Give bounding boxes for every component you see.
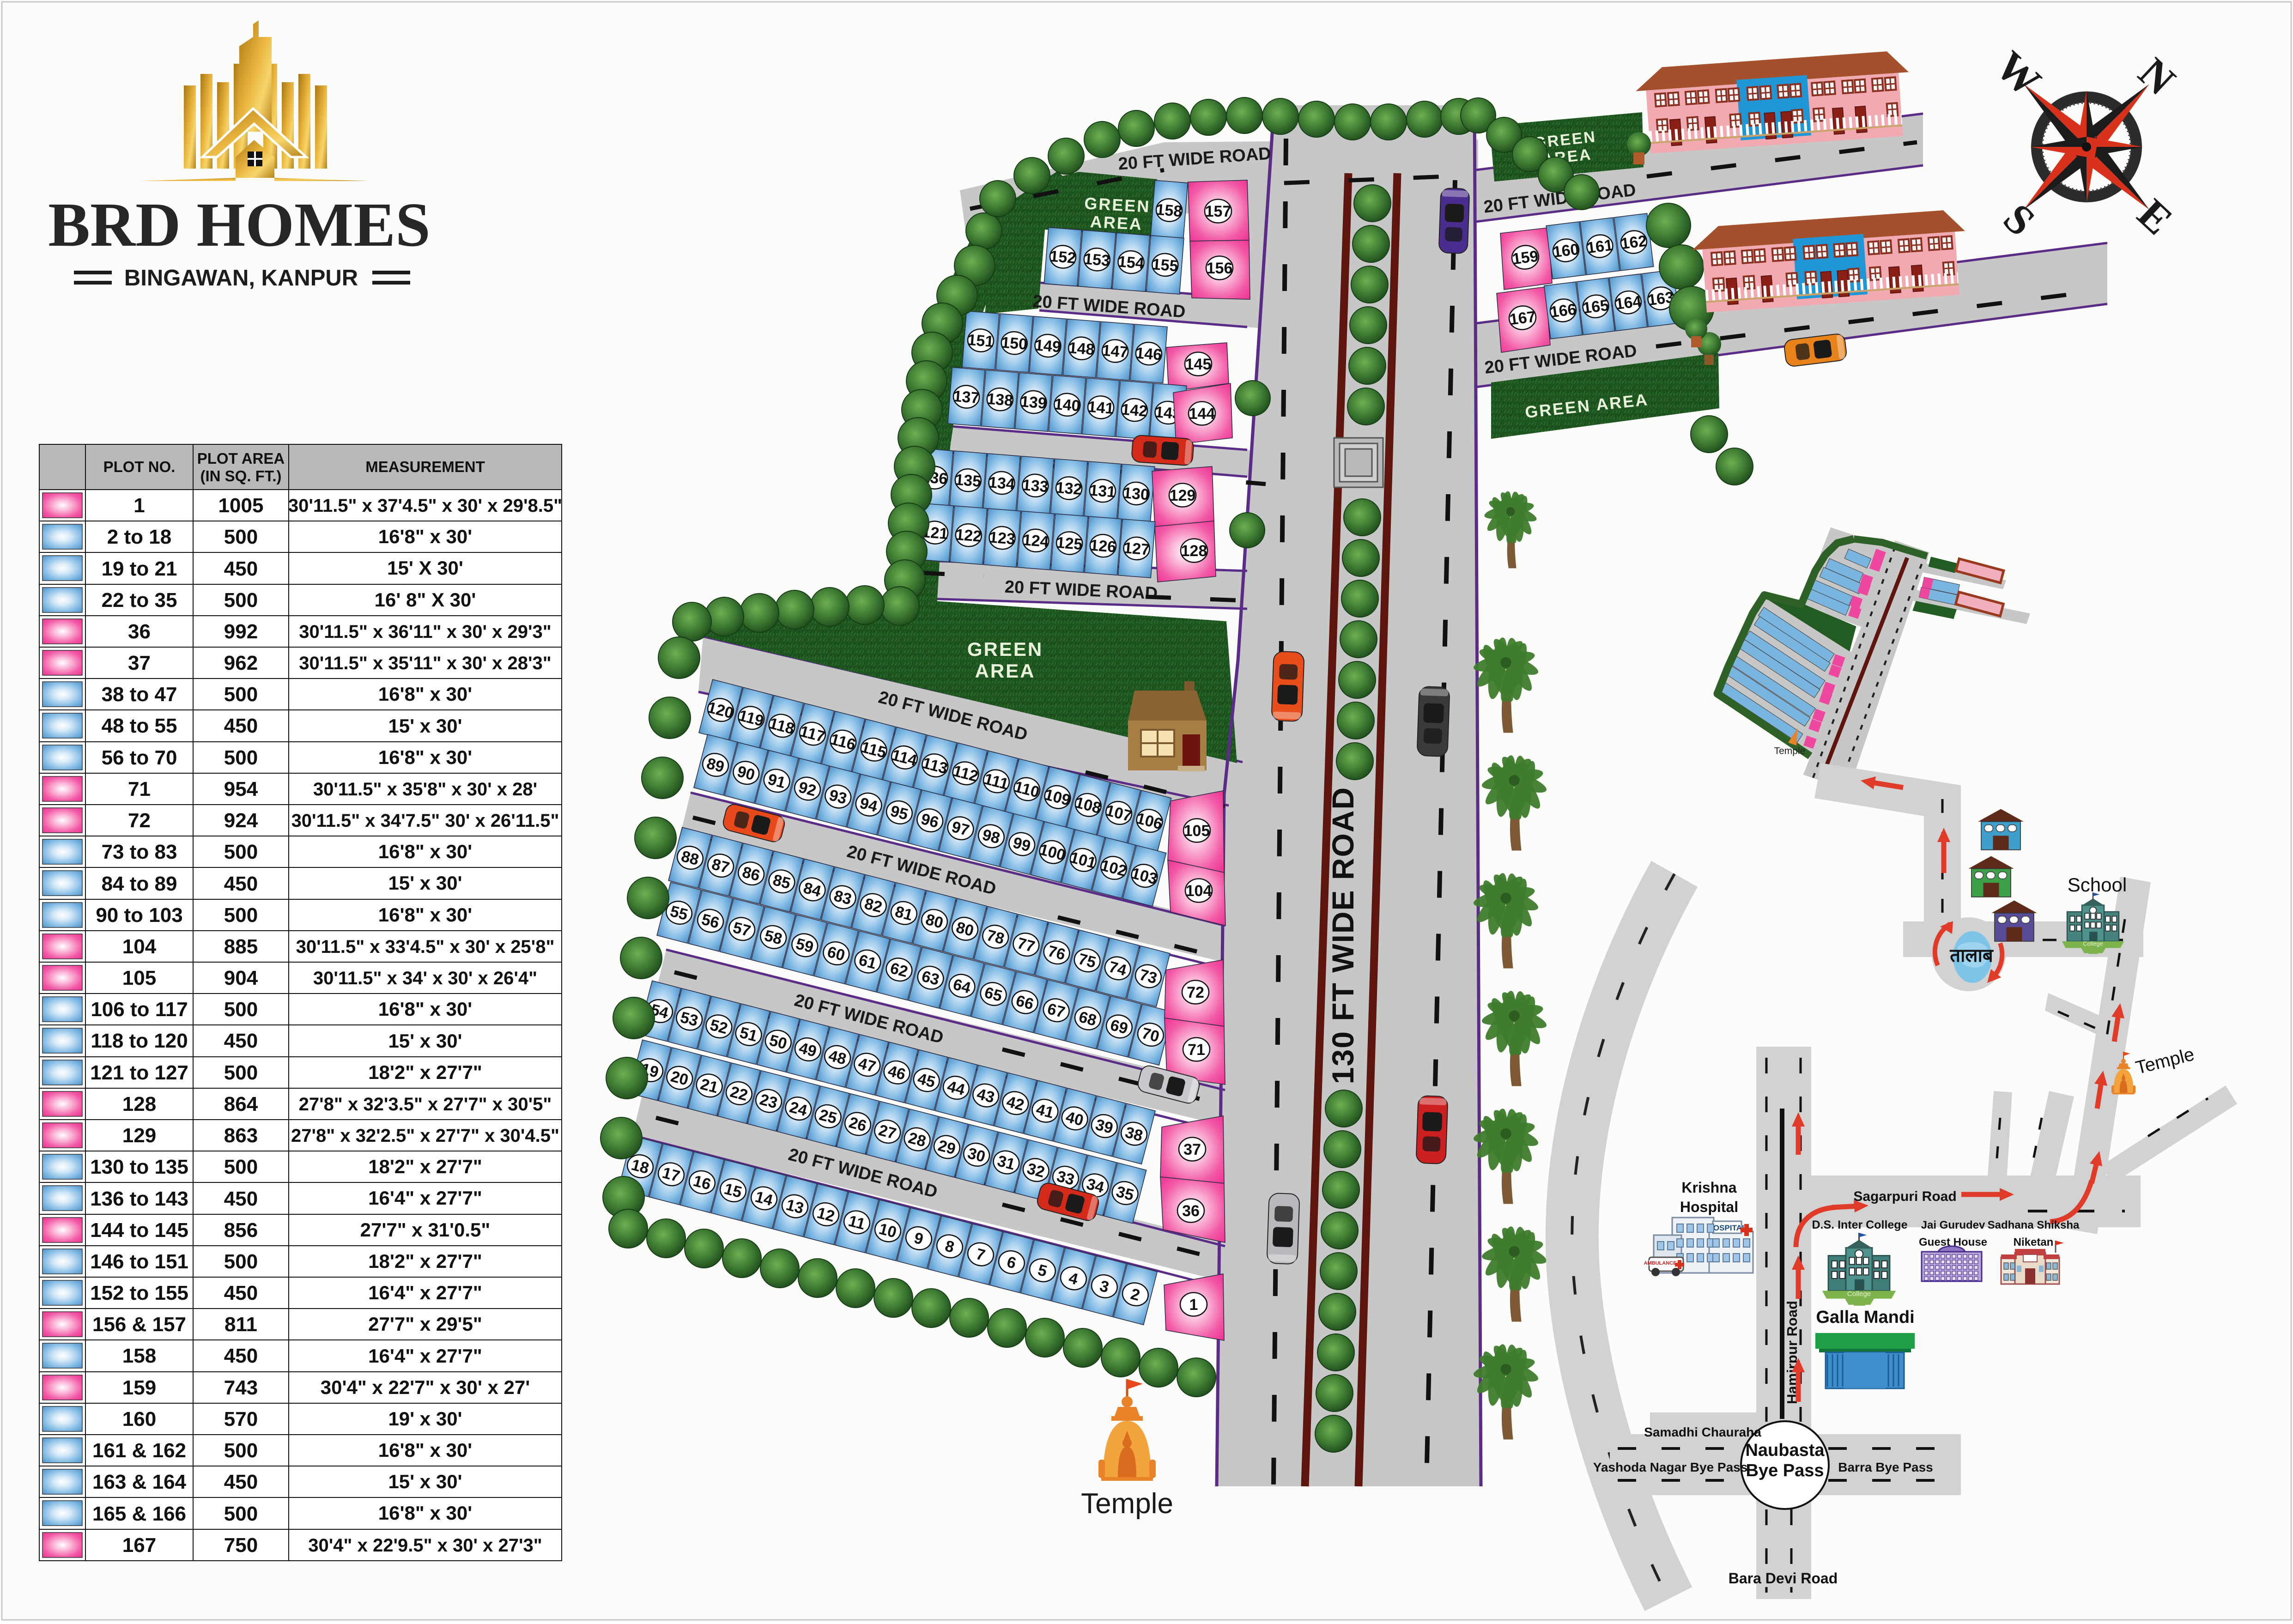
svg-text:27'7" x 29'5": 27'7" x 29'5" bbox=[368, 1313, 482, 1335]
svg-text:150: 150 bbox=[1001, 334, 1028, 353]
svg-text:Temple: Temple bbox=[1081, 1488, 1173, 1520]
svg-text:500: 500 bbox=[224, 1250, 258, 1273]
svg-text:18'2" x 27'7": 18'2" x 27'7" bbox=[368, 1061, 482, 1083]
svg-text:500: 500 bbox=[224, 904, 258, 927]
svg-text:AMBULANCE: AMBULANCE bbox=[1644, 1260, 1677, 1266]
svg-text:500: 500 bbox=[224, 1156, 258, 1178]
svg-text:129: 129 bbox=[122, 1124, 156, 1147]
svg-text:166: 166 bbox=[1549, 301, 1577, 321]
svg-text:125: 125 bbox=[1056, 534, 1083, 553]
svg-text:149: 149 bbox=[1034, 336, 1062, 356]
svg-text:145: 145 bbox=[1185, 356, 1212, 373]
svg-text:136 to 143: 136 to 143 bbox=[90, 1188, 188, 1210]
svg-text:954: 954 bbox=[224, 778, 258, 800]
svg-text:36: 36 bbox=[128, 620, 151, 643]
svg-text:450: 450 bbox=[224, 1282, 258, 1304]
svg-text:71: 71 bbox=[1188, 1041, 1205, 1059]
svg-text:138: 138 bbox=[986, 390, 1014, 410]
svg-text:500: 500 bbox=[224, 683, 258, 706]
svg-text:147: 147 bbox=[1101, 342, 1129, 361]
svg-text:142: 142 bbox=[1121, 400, 1148, 420]
svg-text:BINGAWAN, KANPUR: BINGAWAN, KANPUR bbox=[124, 266, 358, 291]
svg-text:PLOT AREA: PLOT AREA bbox=[197, 450, 285, 467]
svg-text:154: 154 bbox=[1117, 253, 1145, 272]
svg-text:105: 105 bbox=[122, 967, 156, 989]
svg-text:Naubasta: Naubasta bbox=[1745, 1441, 1825, 1460]
svg-text:159: 159 bbox=[1511, 248, 1540, 268]
svg-text:15' x 30': 15' x 30' bbox=[388, 715, 462, 737]
svg-text:450: 450 bbox=[224, 1188, 258, 1210]
svg-text:Galla Mandi: Galla Mandi bbox=[1816, 1308, 1914, 1327]
svg-text:1005: 1005 bbox=[218, 494, 264, 517]
svg-text:146: 146 bbox=[1135, 344, 1163, 364]
svg-text:962: 962 bbox=[224, 652, 258, 674]
svg-text:84 to 89: 84 to 89 bbox=[102, 873, 177, 895]
svg-text:130: 130 bbox=[1122, 484, 1150, 503]
svg-text:Niketan: Niketan bbox=[2014, 1236, 2054, 1248]
svg-text:450: 450 bbox=[224, 557, 258, 580]
svg-text:36: 36 bbox=[1182, 1202, 1200, 1220]
svg-text:158: 158 bbox=[122, 1345, 156, 1367]
svg-text:144 to 145: 144 to 145 bbox=[90, 1219, 188, 1242]
svg-text:500: 500 bbox=[224, 1503, 258, 1525]
svg-text:27'7" x 31'0.5": 27'7" x 31'0.5" bbox=[360, 1219, 491, 1241]
svg-text:159: 159 bbox=[122, 1376, 156, 1399]
svg-text:141: 141 bbox=[1087, 398, 1115, 418]
svg-text:122: 122 bbox=[955, 526, 983, 545]
svg-text:161 & 162: 161 & 162 bbox=[92, 1439, 186, 1462]
svg-text:15' x 30': 15' x 30' bbox=[388, 1030, 462, 1052]
svg-text:30'4" x 22'9.5" x 30' x 27'3": 30'4" x 22'9.5" x 30' x 27'3" bbox=[308, 1535, 542, 1556]
svg-text:Guest House: Guest House bbox=[1919, 1236, 1987, 1248]
svg-text:450: 450 bbox=[224, 1030, 258, 1052]
svg-text:165: 165 bbox=[1582, 297, 1610, 317]
svg-text:16'8" x 30': 16'8" x 30' bbox=[378, 998, 472, 1020]
svg-text:500: 500 bbox=[224, 841, 258, 863]
svg-text:105: 105 bbox=[1184, 822, 1210, 840]
svg-text:30'11.5" x 34' x 30' x 26'4": 30'11.5" x 34' x 30' x 26'4" bbox=[313, 968, 537, 988]
svg-text:160: 160 bbox=[122, 1408, 156, 1430]
svg-text:71: 71 bbox=[128, 778, 151, 800]
svg-text:Krishna: Krishna bbox=[1681, 1179, 1736, 1196]
svg-text:School: School bbox=[2068, 874, 2127, 896]
svg-text:130 FT WIDE ROAD: 130 FT WIDE ROAD bbox=[1326, 787, 1360, 1084]
svg-text:126: 126 bbox=[1089, 536, 1117, 556]
svg-text:135: 135 bbox=[954, 471, 982, 491]
svg-text:856: 856 bbox=[224, 1219, 258, 1242]
svg-text:160: 160 bbox=[1552, 241, 1580, 261]
svg-text:16' 8" X 30': 16' 8" X 30' bbox=[375, 589, 476, 611]
svg-text:PLOT NO.: PLOT NO. bbox=[103, 458, 176, 475]
svg-text:139: 139 bbox=[1020, 393, 1048, 412]
svg-text:16'4" x 27'7": 16'4" x 27'7" bbox=[368, 1187, 482, 1209]
svg-text:College: College bbox=[2083, 940, 2103, 947]
svg-text:151: 151 bbox=[967, 331, 995, 351]
svg-text:30'11.5" x 35'11" x 30' x 28'3: 30'11.5" x 35'11" x 30' x 28'3" bbox=[299, 653, 552, 673]
svg-text:37: 37 bbox=[1183, 1141, 1201, 1158]
svg-text:148: 148 bbox=[1068, 339, 1095, 358]
svg-text:864: 864 bbox=[224, 1093, 258, 1115]
svg-text:D.S. Inter College: D.S. Inter College bbox=[1812, 1218, 1908, 1231]
svg-text:153: 153 bbox=[1083, 250, 1111, 270]
svg-text:131: 131 bbox=[1089, 481, 1116, 501]
svg-text:811: 811 bbox=[224, 1313, 257, 1336]
svg-text:15' X 30': 15' X 30' bbox=[387, 557, 463, 579]
svg-text:27'8" x 32'2.5" x 27'7" x 30'4: 27'8" x 32'2.5" x 27'7" x 30'4.5" bbox=[291, 1126, 559, 1146]
svg-text:15' x 30': 15' x 30' bbox=[388, 1471, 462, 1492]
svg-text:18'2" x 27'7": 18'2" x 27'7" bbox=[368, 1156, 482, 1177]
svg-text:16'4" x 27'7": 16'4" x 27'7" bbox=[368, 1282, 482, 1303]
svg-text:College: College bbox=[1847, 1290, 1871, 1298]
svg-text:152 to 155: 152 to 155 bbox=[90, 1282, 188, 1304]
svg-text:2 to 18: 2 to 18 bbox=[107, 526, 171, 548]
svg-text:37: 37 bbox=[128, 652, 151, 674]
svg-text:Hospital: Hospital bbox=[1680, 1199, 1738, 1215]
svg-text:133: 133 bbox=[1021, 476, 1049, 496]
svg-text:123: 123 bbox=[989, 528, 1016, 548]
svg-text:500: 500 bbox=[224, 589, 258, 612]
svg-text:132: 132 bbox=[1055, 479, 1083, 498]
svg-text:90 to 103: 90 to 103 bbox=[96, 904, 182, 927]
svg-text:16'8" x 30': 16'8" x 30' bbox=[378, 1502, 472, 1524]
svg-text:500: 500 bbox=[224, 746, 258, 769]
svg-text:48 to 55: 48 to 55 bbox=[102, 715, 177, 737]
svg-text:163 & 164: 163 & 164 bbox=[92, 1471, 187, 1493]
svg-text:27'8" x 32'3.5" x 27'7" x 30'5: 27'8" x 32'3.5" x 27'7" x 30'5" bbox=[299, 1094, 552, 1115]
svg-text:137: 137 bbox=[952, 388, 980, 407]
svg-text:Yashoda Nagar Bye Pass: Yashoda Nagar Bye Pass bbox=[1593, 1460, 1748, 1474]
svg-text:750: 750 bbox=[224, 1534, 258, 1557]
svg-text:885: 885 bbox=[224, 935, 258, 958]
svg-text:AREA: AREA bbox=[1090, 212, 1143, 234]
svg-text:121 to 127: 121 to 127 bbox=[90, 1061, 188, 1084]
svg-text:124: 124 bbox=[1022, 531, 1049, 551]
svg-text:500: 500 bbox=[224, 1061, 258, 1084]
svg-text:128: 128 bbox=[1181, 542, 1207, 560]
svg-text:104: 104 bbox=[1186, 882, 1212, 900]
svg-text:570: 570 bbox=[224, 1408, 258, 1430]
svg-text:904: 904 bbox=[224, 967, 258, 989]
svg-text:MEASUREMENT: MEASUREMENT bbox=[365, 458, 485, 475]
svg-text:450: 450 bbox=[224, 715, 258, 737]
svg-text:22 to 35: 22 to 35 bbox=[102, 589, 177, 612]
svg-text:500: 500 bbox=[224, 1439, 258, 1462]
svg-text:162: 162 bbox=[1620, 232, 1648, 253]
svg-text:Temple: Temple bbox=[1774, 746, 1805, 757]
svg-text:106 to 117: 106 to 117 bbox=[91, 998, 188, 1021]
svg-text:167: 167 bbox=[1509, 308, 1537, 329]
svg-text:161: 161 bbox=[1586, 236, 1614, 257]
svg-text:AREA: AREA bbox=[975, 660, 1035, 682]
svg-text:19 to 21: 19 to 21 bbox=[102, 557, 177, 580]
svg-text:167: 167 bbox=[122, 1534, 156, 1557]
svg-text:Bara Devi Road: Bara Devi Road bbox=[1729, 1570, 1838, 1587]
svg-text:155: 155 bbox=[1151, 255, 1179, 275]
svg-text:16'8" x 30': 16'8" x 30' bbox=[378, 1439, 472, 1461]
svg-text:38 to 47: 38 to 47 bbox=[102, 683, 177, 706]
svg-text:Samadhi Chauraha: Samadhi Chauraha bbox=[1644, 1425, 1761, 1439]
svg-text:30'11.5" x 33'4.5" x 30' x 25': 30'11.5" x 33'4.5" x 30' x 25'8" bbox=[296, 937, 555, 957]
svg-text:(IN SQ. FT.): (IN SQ. FT.) bbox=[200, 467, 282, 485]
svg-text:30'11.5" x 34'7.5" 30' x 26'1: 30'11.5" x 34'7.5" 30' x 26'11.5" bbox=[291, 811, 559, 831]
svg-text:863: 863 bbox=[224, 1124, 258, 1147]
svg-text:16'8" x 30': 16'8" x 30' bbox=[378, 683, 472, 705]
svg-text:104: 104 bbox=[122, 935, 157, 958]
svg-text:30'11.5" x 36'11" x 30' x 29'3: 30'11.5" x 36'11" x 30' x 29'3" bbox=[299, 622, 552, 642]
svg-text:129: 129 bbox=[1170, 487, 1196, 504]
svg-text:450: 450 bbox=[224, 1345, 258, 1367]
svg-text:164: 164 bbox=[1614, 292, 1643, 313]
svg-text:128: 128 bbox=[122, 1093, 156, 1115]
svg-text:72: 72 bbox=[1187, 984, 1204, 1001]
svg-text:तालाब: तालाब bbox=[1949, 945, 1994, 966]
svg-text:500: 500 bbox=[224, 998, 258, 1021]
svg-text:157: 157 bbox=[1205, 203, 1231, 220]
svg-text:500: 500 bbox=[224, 526, 258, 548]
svg-text:450: 450 bbox=[224, 873, 258, 895]
svg-text:BRD HOMES: BRD HOMES bbox=[48, 190, 430, 260]
svg-text:Jai Gurudev: Jai Gurudev bbox=[1921, 1219, 1985, 1231]
svg-text:158: 158 bbox=[1155, 201, 1183, 220]
svg-text:152: 152 bbox=[1049, 248, 1077, 267]
svg-text:130 to 135: 130 to 135 bbox=[90, 1156, 188, 1178]
svg-text:156 & 157: 156 & 157 bbox=[92, 1313, 186, 1336]
svg-text:144: 144 bbox=[1189, 405, 1215, 423]
svg-text:156: 156 bbox=[1207, 260, 1233, 277]
svg-text:Bye Pass: Bye Pass bbox=[1746, 1461, 1824, 1480]
svg-text:Sagarpuri Road: Sagarpuri Road bbox=[1853, 1189, 1956, 1204]
svg-text:450: 450 bbox=[224, 1471, 258, 1493]
svg-text:16'4" x 27'7": 16'4" x 27'7" bbox=[368, 1345, 482, 1367]
svg-text:Barra Bye Pass: Barra Bye Pass bbox=[1838, 1460, 1933, 1474]
svg-text:30'11.5" x 35'8" x 30' x 28': 30'11.5" x 35'8" x 30' x 28' bbox=[313, 779, 537, 800]
svg-text:924: 924 bbox=[224, 809, 258, 832]
svg-text:30'11.5" x 37'4.5" x 30' x 29': 30'11.5" x 37'4.5" x 30' x 29'8.5" bbox=[288, 496, 562, 516]
svg-text:165 & 166: 165 & 166 bbox=[92, 1503, 186, 1525]
svg-text:19' x 30': 19' x 30' bbox=[388, 1408, 462, 1430]
svg-text:134: 134 bbox=[988, 473, 1016, 493]
svg-text:992: 992 bbox=[224, 620, 258, 643]
svg-text:16'8" x 30': 16'8" x 30' bbox=[378, 746, 472, 768]
svg-text:146 to 151: 146 to 151 bbox=[90, 1250, 188, 1273]
svg-text:30'4" x 22'7" x 30' x 27': 30'4" x 22'7" x 30' x 27' bbox=[321, 1376, 530, 1398]
svg-text:GREEN: GREEN bbox=[967, 638, 1043, 660]
svg-text:72: 72 bbox=[128, 809, 151, 832]
svg-text:16'8" x 30': 16'8" x 30' bbox=[378, 841, 472, 862]
svg-text:18'2" x 27'7": 18'2" x 27'7" bbox=[368, 1250, 482, 1272]
svg-text:1: 1 bbox=[133, 494, 145, 517]
svg-text:118 to 120: 118 to 120 bbox=[91, 1030, 188, 1052]
svg-text:56 to 70: 56 to 70 bbox=[102, 746, 177, 769]
svg-text:73 to 83: 73 to 83 bbox=[102, 841, 177, 863]
svg-text:16'8" x 30': 16'8" x 30' bbox=[378, 904, 472, 926]
svg-text:127: 127 bbox=[1123, 539, 1151, 558]
svg-text:15' x 30': 15' x 30' bbox=[388, 872, 462, 894]
svg-text:Sadhana Shiksha: Sadhana Shiksha bbox=[1988, 1219, 2080, 1231]
svg-text:1: 1 bbox=[1189, 1296, 1198, 1314]
svg-text:140: 140 bbox=[1053, 395, 1081, 415]
svg-text:743: 743 bbox=[224, 1376, 258, 1399]
svg-text:16'8" x 30': 16'8" x 30' bbox=[378, 526, 472, 547]
